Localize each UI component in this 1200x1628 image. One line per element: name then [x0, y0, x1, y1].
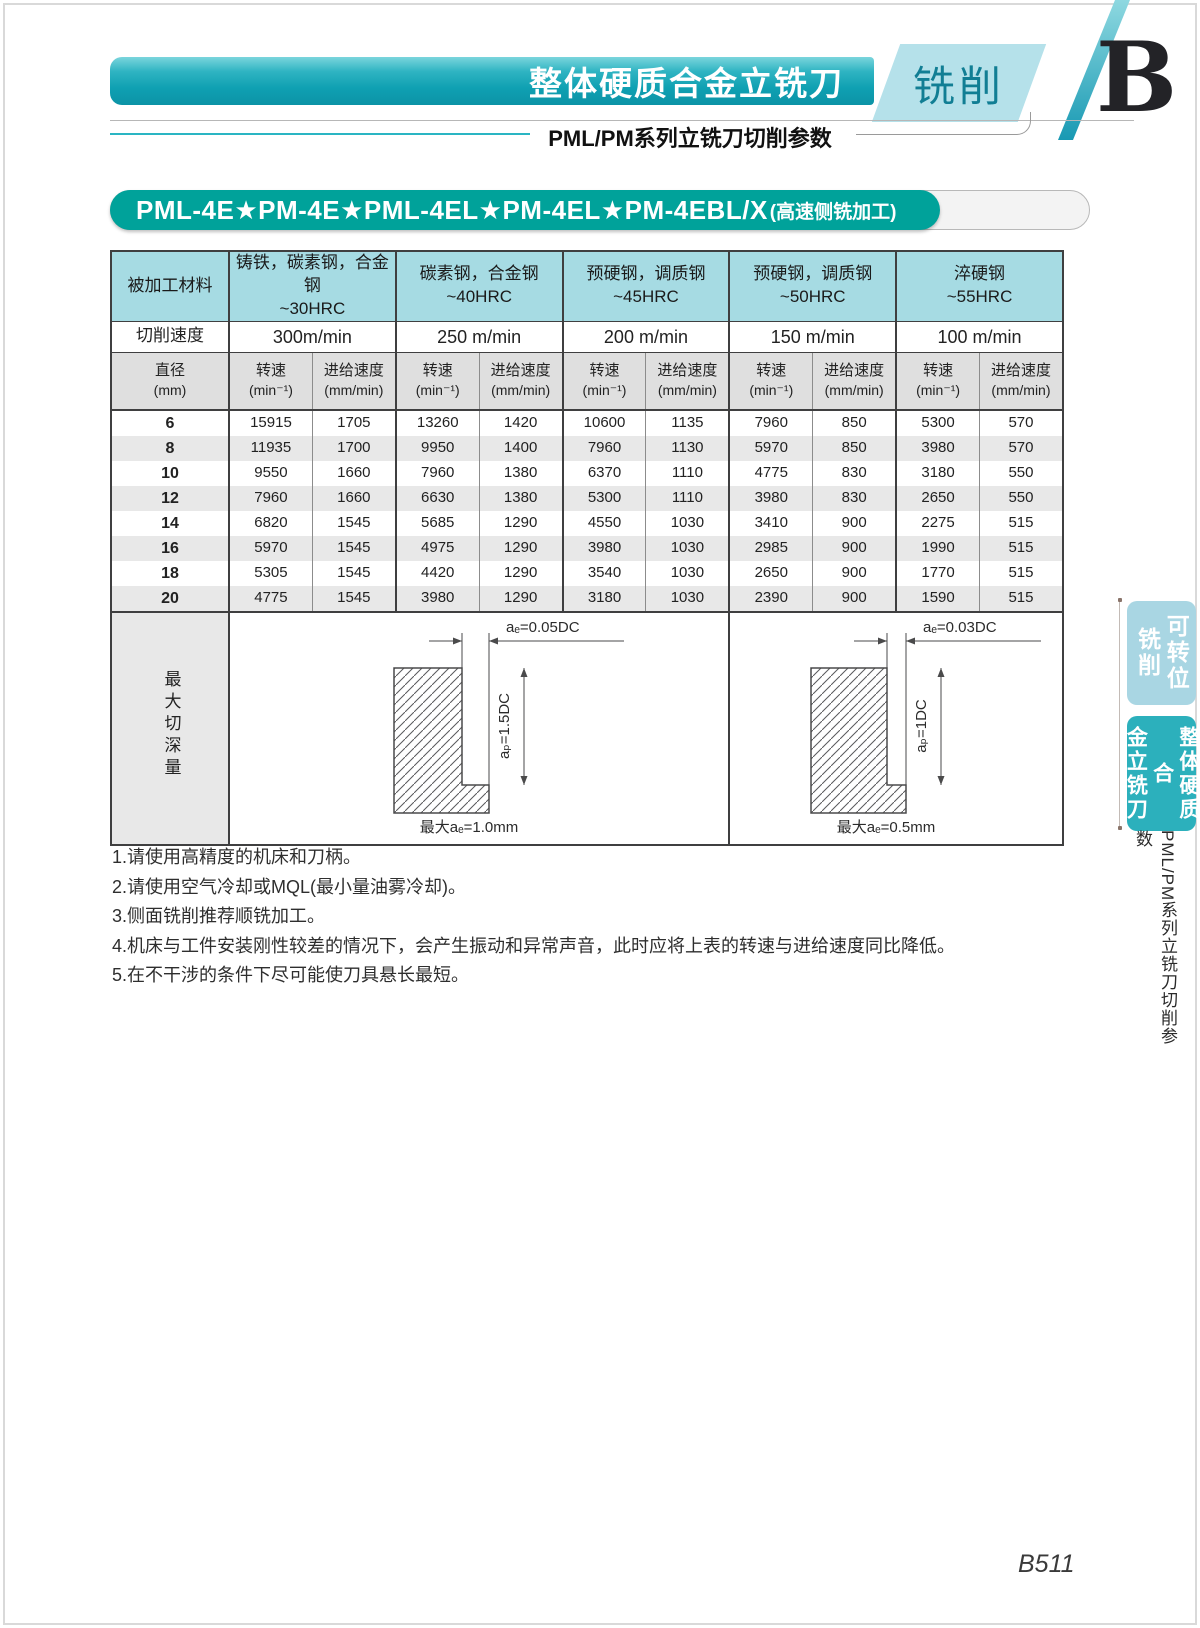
usage-notes: 1.请使用高精度的机床和刀柄。 2.请使用空气冷却或MQL(最小量油雾冷却)。 … [112, 843, 1112, 991]
tab-indexable-milling: 可转位铣削 [1127, 601, 1196, 705]
spindle-speed-cell: 2650 [729, 561, 812, 586]
max-depth-label: 最大切深量 [159, 670, 182, 780]
feed-rate-cell: 1135 [646, 410, 729, 436]
diameter-data-row: 1095501660796013806370111047758303180550 [111, 461, 1063, 486]
speed-col-header: 转速(min⁻¹) [396, 352, 479, 410]
feed-rate-cell: 1030 [646, 561, 729, 586]
ap-dimension-label: aₚ=1DC [913, 699, 930, 753]
spindle-speed-cell: 4775 [229, 586, 312, 612]
feed-rate-cell: 515 [980, 511, 1063, 536]
page-number: B511 [1018, 1550, 1075, 1579]
category-tab: 铣削 [872, 44, 1046, 122]
feed-rate-cell: 1290 [479, 586, 562, 612]
cutting-parameters-table-wrap: 被加工材料 铸铁，碳素钢，合金钢~30HRC 碳素钢，合金钢~40HRC 预硬钢… [110, 250, 1064, 846]
ae-dimension-label: aₑ=0.03DC [923, 619, 997, 636]
diameter-header-cell: 直径(mm) [111, 352, 229, 410]
max-ae-label: 最大aₑ=1.0mm [420, 819, 519, 836]
feed-rate-cell: 1290 [479, 561, 562, 586]
material-group-cell: 淬硬钢~55HRC [896, 251, 1063, 321]
feed-rate-cell: 1030 [646, 586, 729, 612]
spindle-speed-cell: 2985 [729, 536, 812, 561]
cutting-speed-cell: 100 m/min [896, 321, 1063, 352]
spindle-speed-cell: 5970 [729, 436, 812, 461]
diameter-data-row: 1853051545442012903540103026509001770515 [111, 561, 1063, 586]
diameter-cell: 10 [111, 461, 229, 486]
feed-col-header: 进给速度(mm/min) [980, 352, 1063, 410]
feed-rate-cell: 1660 [312, 461, 395, 486]
feed-col-header: 进给速度(mm/min) [646, 352, 729, 410]
feed-col-header: 进给速度(mm/min) [813, 352, 896, 410]
tab-guide-line [1119, 601, 1120, 827]
depth-diagram-left: aₑ=0.05DC aₚ=1.5DC 最大aₑ=1.0mm [324, 613, 634, 838]
feed-rate-cell: 830 [813, 461, 896, 486]
feed-rate-cell: 1290 [479, 536, 562, 561]
page-title: 整体硬质合金立铣刀 [529, 57, 844, 105]
feed-col-header: 进给速度(mm/min) [479, 352, 562, 410]
diameter-data-row: 1468201545568512904550103034109002275515 [111, 511, 1063, 536]
feed-rate-cell: 1290 [479, 511, 562, 536]
cutting-parameters-table: 被加工材料 铸铁，碳素钢，合金钢~30HRC 碳素钢，合金钢~40HRC 预硬钢… [110, 250, 1064, 846]
feed-rate-cell: 830 [813, 486, 896, 511]
ae-dimension-label: aₑ=0.05DC [506, 619, 580, 636]
note-line: 1.请使用高精度的机床和刀柄。 [112, 843, 1112, 873]
spindle-speed-cell: 5300 [896, 410, 979, 436]
tab-solid-carbide-endmill-label: 整体硬质合金立铣刀 [1122, 716, 1200, 831]
spindle-speed-cell: 7960 [563, 436, 646, 461]
spindle-speed-cell: 13260 [396, 410, 479, 436]
speed-col-header: 转速(min⁻¹) [896, 352, 979, 410]
material-group-cell: 碳素钢，合金钢~40HRC [396, 251, 563, 321]
speed-col-header: 转速(min⁻¹) [729, 352, 812, 410]
feed-rate-cell: 1400 [479, 436, 562, 461]
feed-rate-cell: 1705 [312, 410, 395, 436]
section-letter: B [1096, 30, 1177, 126]
spindle-speed-cell: 2275 [896, 511, 979, 536]
cutting-speed-cell: 200 m/min [563, 321, 730, 352]
feed-rate-cell: 900 [813, 511, 896, 536]
depth-diagram-left-cell: aₑ=0.05DC aₚ=1.5DC 最大aₑ=1.0mm [229, 612, 729, 846]
cutting-speed-label: 切削速度 [111, 321, 229, 352]
note-line: 4.机床与工件安装刚性较差的情况下，会产生振动和异常声音，此时应将上表的转速与进… [112, 932, 1112, 962]
diameter-data-row: 2047751545398012903180103023909001590515 [111, 586, 1063, 612]
spindle-speed-cell: 9950 [396, 436, 479, 461]
spindle-speed-cell: 3980 [563, 536, 646, 561]
diameter-cell: 12 [111, 486, 229, 511]
workpiece-shape [394, 668, 489, 813]
feed-rate-cell: 570 [980, 436, 1063, 461]
subtitle-teal-line [110, 133, 530, 135]
diameter-cell: 8 [111, 436, 229, 461]
diameter-data-row: 8119351700995014007960113059708503980570 [111, 436, 1063, 461]
material-group-cell: 铸铁，碳素钢，合金钢~30HRC [229, 251, 396, 321]
feed-rate-cell: 900 [813, 561, 896, 586]
spindle-speed-cell: 6630 [396, 486, 479, 511]
feed-rate-cell: 1130 [646, 436, 729, 461]
feed-rate-cell: 850 [813, 410, 896, 436]
spindle-speed-cell: 3180 [563, 586, 646, 612]
feed-rate-cell: 1660 [312, 486, 395, 511]
spindle-speed-cell: 7960 [396, 461, 479, 486]
material-group-cell: 预硬钢，调质钢~50HRC [729, 251, 896, 321]
tab-solid-carbide-endmill: 整体硬质合金立铣刀 [1127, 716, 1196, 831]
speed-col-header: 转速(min⁻¹) [563, 352, 646, 410]
feed-rate-cell: 1380 [479, 486, 562, 511]
feed-rate-cell: 515 [980, 536, 1063, 561]
feed-col-header: 进给速度(mm/min) [312, 352, 395, 410]
speed-col-header: 转速(min⁻¹) [229, 352, 312, 410]
diameter-cell: 20 [111, 586, 229, 612]
spindle-speed-cell: 2390 [729, 586, 812, 612]
spindle-speed-cell: 4775 [729, 461, 812, 486]
diameter-cell: 6 [111, 410, 229, 436]
spindle-speed-cell: 1770 [896, 561, 979, 586]
feed-rate-cell: 1030 [646, 536, 729, 561]
feed-rate-cell: 1545 [312, 586, 395, 612]
note-line: 3.侧面铣削推荐顺铣加工。 [112, 902, 1112, 932]
max-depth-row: 最大切深量 [111, 612, 1063, 846]
note-line: 5.在不干涉的条件下尽可能使刀具悬长最短。 [112, 961, 1112, 991]
feed-rate-cell: 1545 [312, 511, 395, 536]
ap-dimension-label: aₚ=1.5DC [496, 693, 513, 759]
tab-indexable-milling-label: 可转位铣削 [1133, 614, 1191, 692]
side-caption: PML/PM系列立铣刀切削参数 [1130, 830, 1180, 1060]
series-models: PML-4E★PM-4E★PML-4EL★PM-4EL★PM-4EBL/X [136, 195, 768, 226]
category-tab-label: 铣削 [913, 53, 1005, 114]
feed-rate-cell: 550 [980, 486, 1063, 511]
feed-rate-cell: 550 [980, 461, 1063, 486]
top-title-bar: 整体硬质合金立铣刀 [110, 57, 874, 105]
spindle-speed-cell: 4550 [563, 511, 646, 536]
material-header-row: 被加工材料 铸铁，碳素钢，合金钢~30HRC 碳素钢，合金钢~40HRC 预硬钢… [111, 251, 1063, 321]
feed-rate-cell: 1110 [646, 461, 729, 486]
feed-rate-cell: 570 [980, 410, 1063, 436]
subtitle-curve-line [856, 112, 1031, 135]
series-banner: PML-4E★PM-4E★PML-4EL★PM-4EL★PM-4EBL/X (高… [110, 190, 940, 230]
spindle-speed-cell: 3980 [729, 486, 812, 511]
spindle-speed-cell: 4975 [396, 536, 479, 561]
material-header-label: 被加工材料 [111, 251, 229, 321]
spindle-speed-cell: 7960 [729, 410, 812, 436]
cutting-speed-row: 切削速度 300m/min 250 m/min 200 m/min 150 m/… [111, 321, 1063, 352]
feed-rate-cell: 900 [813, 586, 896, 612]
feed-rate-cell: 1545 [312, 561, 395, 586]
feed-rate-cell: 515 [980, 561, 1063, 586]
cutting-speed-cell: 300m/min [229, 321, 396, 352]
workpiece-shape [811, 668, 906, 813]
spindle-speed-cell: 11935 [229, 436, 312, 461]
spindle-speed-cell: 5685 [396, 511, 479, 536]
spindle-speed-cell: 3410 [729, 511, 812, 536]
cutting-speed-cell: 250 m/min [396, 321, 563, 352]
diameter-cell: 18 [111, 561, 229, 586]
feed-rate-cell: 515 [980, 586, 1063, 612]
spindle-speed-cell: 5305 [229, 561, 312, 586]
feed-rate-cell: 1420 [479, 410, 562, 436]
depth-diagram-right-cell: aₑ=0.03DC aₚ=1DC 最大aₑ=0.5mm [729, 612, 1063, 846]
catalog-page: 整体硬质合金立铣刀 铣削 B PML/PM系列立铣刀切削参数 PML-4E★PM… [0, 0, 1200, 1628]
material-group-cell: 预硬钢，调质钢~45HRC [563, 251, 730, 321]
feed-rate-cell: 1380 [479, 461, 562, 486]
diameter-data-row: 1659701545497512903980103029859001990515 [111, 536, 1063, 561]
diameter-data-row: 1279601660663013805300111039808302650550 [111, 486, 1063, 511]
diameter-cell: 14 [111, 511, 229, 536]
diameter-cell: 16 [111, 536, 229, 561]
feed-rate-cell: 850 [813, 436, 896, 461]
spindle-speed-cell: 5970 [229, 536, 312, 561]
spindle-speed-cell: 2650 [896, 486, 979, 511]
spindle-speed-cell: 9550 [229, 461, 312, 486]
spindle-speed-cell: 5300 [563, 486, 646, 511]
feed-rate-cell: 1030 [646, 511, 729, 536]
spindle-speed-cell: 3180 [896, 461, 979, 486]
spindle-speed-cell: 6370 [563, 461, 646, 486]
spindle-speed-cell: 10600 [563, 410, 646, 436]
guide-dot [1118, 598, 1122, 602]
feed-rate-cell: 900 [813, 536, 896, 561]
spindle-speed-cell: 1990 [896, 536, 979, 561]
spindle-speed-cell: 3540 [563, 561, 646, 586]
spindle-speed-cell: 1590 [896, 586, 979, 612]
max-ae-label: 最大aₑ=0.5mm [837, 819, 936, 836]
spindle-speed-cell: 4420 [396, 561, 479, 586]
spindle-speed-cell: 6820 [229, 511, 312, 536]
spindle-speed-cell: 7960 [229, 486, 312, 511]
spindle-speed-cell: 15915 [229, 410, 312, 436]
feed-rate-cell: 1700 [312, 436, 395, 461]
cutting-speed-cell: 150 m/min [729, 321, 896, 352]
series-suffix: (高速侧铣加工) [770, 197, 897, 224]
column-header-row: 直径(mm) 转速(min⁻¹) 进给速度(mm/min) 转速(min⁻¹) … [111, 352, 1063, 410]
diameter-data-row: 6159151705132601420106001135796085053005… [111, 410, 1063, 436]
note-line: 2.请使用空气冷却或MQL(最小量油雾冷却)。 [112, 873, 1112, 903]
depth-diagram-right: aₑ=0.03DC aₚ=1DC 最大aₑ=0.5mm [741, 613, 1051, 838]
max-depth-label-cell: 最大切深量 [111, 612, 229, 846]
feed-rate-cell: 1545 [312, 536, 395, 561]
spindle-speed-cell: 3980 [896, 436, 979, 461]
spindle-speed-cell: 3980 [396, 586, 479, 612]
feed-rate-cell: 1110 [646, 486, 729, 511]
